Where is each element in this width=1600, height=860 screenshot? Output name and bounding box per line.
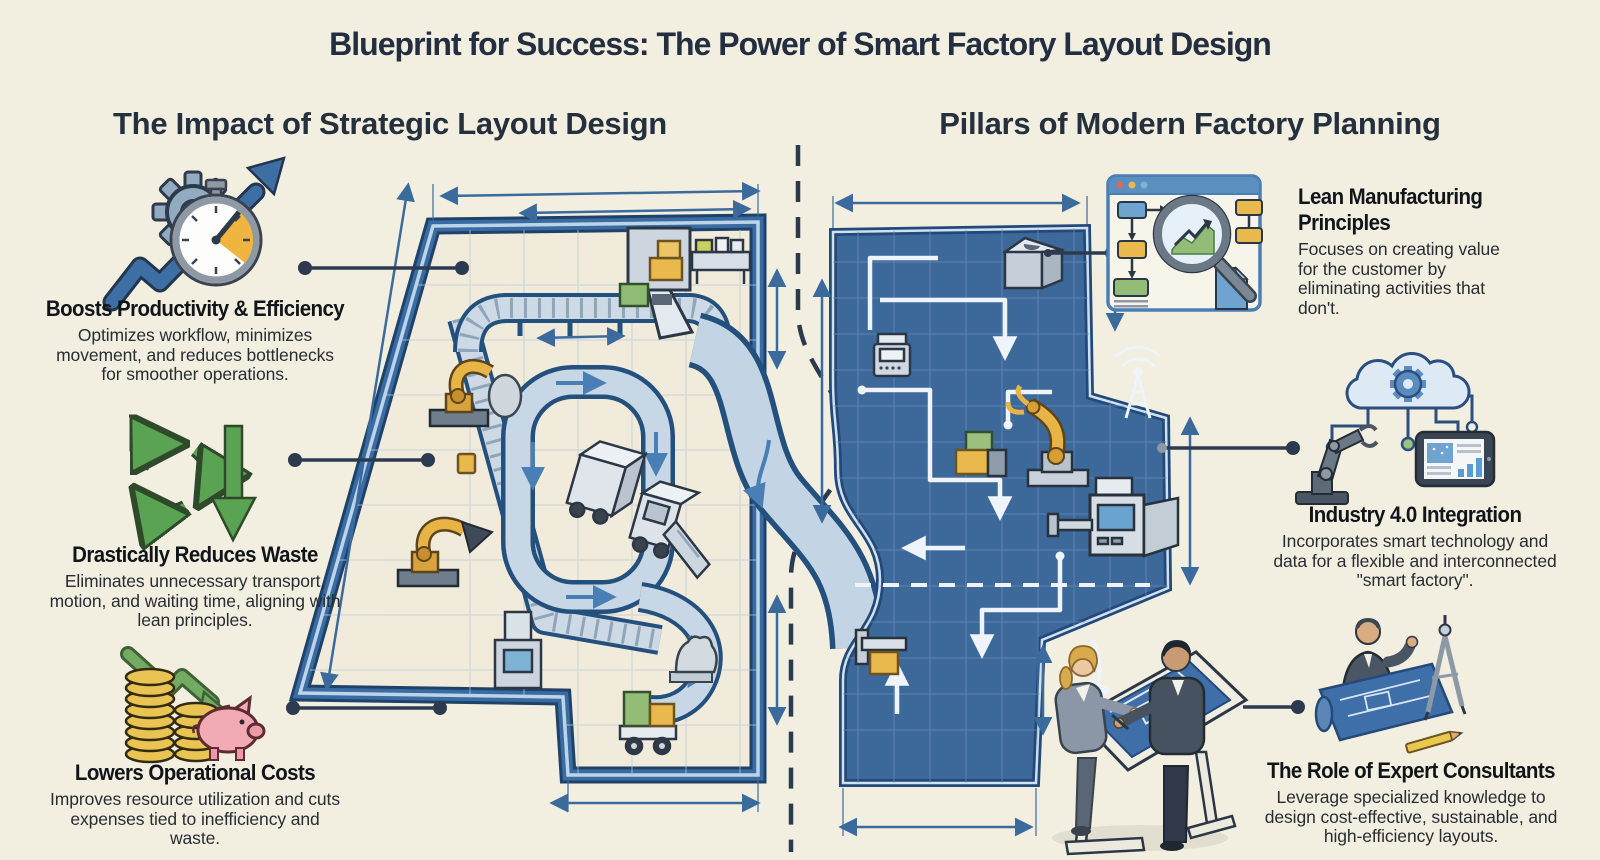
benefit-waste-title: Drastically Reduces Waste <box>28 542 363 568</box>
planners-figures <box>1052 640 1246 854</box>
benefit-costs-title: Lowers Operational Costs <box>28 760 363 786</box>
benefit-waste: Drastically Reduces Waste Eliminates unn… <box>15 542 375 631</box>
pillar-industry40: Industry 4.0 Integration Incorporates sm… <box>1260 502 1570 591</box>
tablet-icon <box>1416 432 1494 486</box>
consultants-icon <box>1316 615 1465 753</box>
benefit-costs: Lowers Operational Costs Improves resour… <box>15 760 375 849</box>
small-box-on-belt <box>458 454 475 473</box>
productivity-icon <box>112 158 284 302</box>
pillar-consultants: The Role of Expert Consultants Leverage … <box>1246 758 1576 847</box>
pillar-lean-description: Focuses on creating value for the custom… <box>1298 240 1513 318</box>
right-section-heading: Pillars of Modern Factory Planning <box>880 106 1500 142</box>
blueprint-machine-left <box>874 334 910 376</box>
cart-on-belt <box>620 284 648 306</box>
benefit-productivity: Boosts Productivity & Efficiency Optimiz… <box>15 296 375 385</box>
cloud-gear <box>1347 353 1469 408</box>
pillar-consultants-description: Leverage specialized knowledge to design… <box>1251 788 1571 847</box>
pillar-lean-title: Lean Manufacturing Principles <box>1298 184 1535 236</box>
lean-analysis-icon <box>1108 176 1262 310</box>
benefit-productivity-title: Boosts Productivity & Efficiency <box>28 296 363 322</box>
recycle-icon <box>140 426 255 540</box>
benefit-costs-description: Improves resource utilization and cuts e… <box>45 790 345 849</box>
left-section-heading: The Impact of Strategic Layout Design <box>50 106 730 142</box>
page-title: Blueprint for Success: The Power of Smar… <box>0 26 1600 63</box>
pillar-industry40-description: Incorporates smart technology and data f… <box>1265 532 1565 591</box>
robot-arm-icon <box>1296 426 1377 504</box>
pillar-consultants-title: The Role of Expert Consultants <box>1258 758 1565 784</box>
costs-icon <box>126 654 264 762</box>
infographic-canvas: Blueprint for Success: The Power of Smar… <box>0 0 1600 860</box>
waste-down-arrow <box>212 426 255 540</box>
pillar-industry40-title: Industry 4.0 Integration <box>1271 502 1559 528</box>
industry40-icon <box>1296 353 1494 504</box>
benefit-productivity-description: Optimizes workflow, minimizes movement, … <box>45 326 345 385</box>
pencil-icon <box>1406 729 1463 753</box>
benefit-waste-description: Eliminates unnecessary transport, motion… <box>45 572 345 631</box>
pillar-lean: Lean Manufacturing Principles Focuses on… <box>1298 184 1553 318</box>
